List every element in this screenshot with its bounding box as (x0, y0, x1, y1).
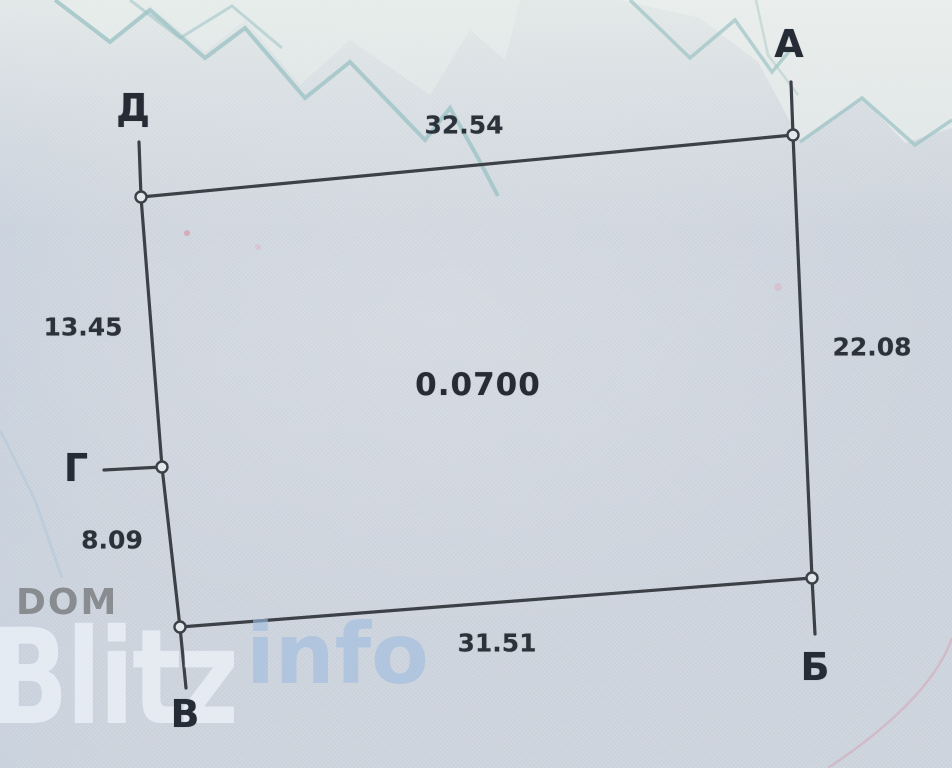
side-top-line (141, 135, 793, 197)
vertex-point-a (788, 130, 799, 141)
vertex-label-g: Г (64, 446, 88, 490)
scanned-plan-page: DOM Blitz info Д А Г В Б 32.54 22.08 31.… (0, 0, 952, 768)
tick-below-v (180, 627, 186, 688)
vertex-point-v (175, 622, 186, 633)
tick-left-of-g (104, 467, 162, 470)
side-bottom-line (180, 578, 812, 627)
vertex-label-d: Д (116, 86, 150, 130)
side-length-left-upper: 13.45 (43, 313, 122, 342)
tick-below-b (812, 578, 815, 634)
side-left-upper-line (141, 197, 162, 467)
side-length-top: 32.54 (424, 111, 503, 140)
side-left-lower-line (162, 467, 180, 627)
tick-above-a (791, 82, 793, 135)
vertex-label-a: А (774, 22, 803, 66)
side-length-left-lower: 8.09 (81, 526, 143, 555)
vertex-label-b: Б (801, 645, 830, 689)
vertex-point-b (807, 573, 818, 584)
side-right-line (793, 135, 812, 578)
vertex-point-g (157, 462, 168, 473)
side-length-bottom: 31.51 (457, 629, 536, 658)
vertex-label-v: В (171, 692, 200, 736)
vertex-point-d (136, 192, 147, 203)
side-length-right: 22.08 (832, 333, 911, 362)
plot-area-value: 0.0700 (415, 367, 541, 403)
tick-above-d (139, 142, 141, 197)
